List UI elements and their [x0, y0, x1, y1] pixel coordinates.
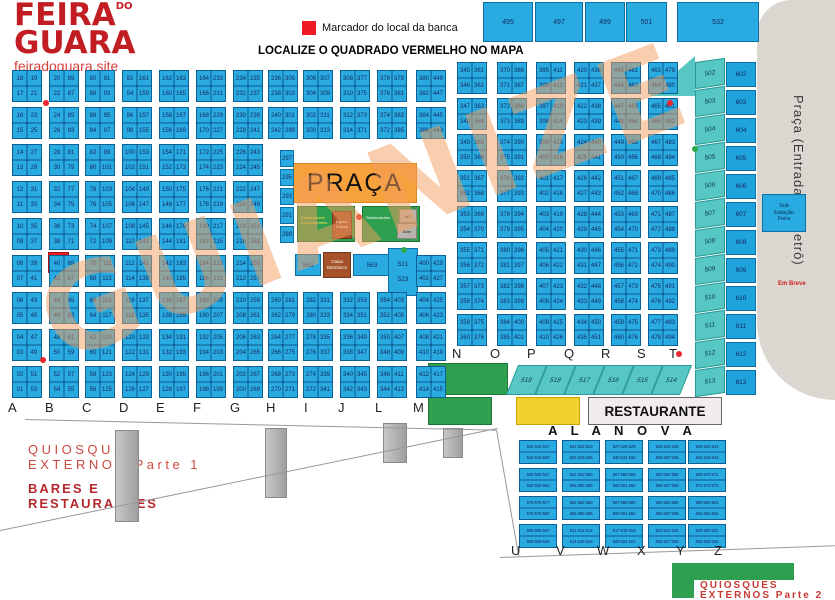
stall-number: 19	[27, 71, 41, 86]
ala-nova-row: 536 537 538	[649, 452, 685, 463]
stall-number: 472	[649, 222, 663, 237]
stall-number: 396	[537, 78, 551, 93]
stall-block: 210259208261	[233, 292, 263, 324]
stall-number: 50	[50, 345, 64, 360]
stall-number: 07	[13, 271, 27, 286]
stall-number: 397	[512, 258, 526, 273]
stall-number: 422	[551, 258, 565, 273]
stall-number: 443	[589, 186, 603, 201]
top-stall-box: 499	[585, 2, 625, 42]
stall-block: 108145110143	[122, 218, 152, 250]
yellow-block	[516, 397, 580, 425]
stall-number: 03	[13, 345, 27, 360]
stall-block: 370386371387	[497, 62, 527, 94]
stall-block: 453469454470	[611, 206, 641, 238]
column-letter-W: W	[597, 543, 609, 558]
side-square-cell: 602	[726, 62, 756, 87]
stall-block: 384445386443	[416, 107, 446, 139]
stall-block: 469485470486	[648, 170, 678, 202]
side-strip-cell: 503	[695, 86, 725, 117]
stall-number: 470	[626, 222, 640, 237]
stall-number: 476	[649, 294, 663, 309]
side-strip-cell: 506	[695, 170, 725, 201]
stall-block: 146179144181	[159, 218, 189, 250]
stall-block: 384400385401	[497, 314, 527, 346]
stall-number: 449	[589, 294, 603, 309]
stall-number: 374	[498, 135, 512, 150]
stall-number: 434	[575, 315, 589, 330]
stall-563: 563	[353, 254, 391, 276]
stall-number: 216	[234, 234, 248, 249]
stall-number: 89	[64, 71, 78, 86]
stall-block: 408421410419	[416, 329, 446, 361]
stall-number: 100	[123, 145, 137, 160]
stall-number: 382	[498, 279, 512, 294]
stall-block: 351367352368	[457, 170, 487, 202]
stall-number: 114	[123, 271, 137, 286]
stall-number: 127	[137, 382, 151, 397]
stall-number: 410	[417, 345, 431, 360]
stall-number: 121	[100, 345, 114, 360]
stall-number: 56	[86, 382, 100, 397]
stall-number: 445	[431, 108, 445, 123]
stall-number: 386	[512, 63, 526, 78]
stall-number: 217	[211, 219, 225, 234]
column-letter-I: I	[304, 400, 308, 415]
stall-number: 340	[341, 367, 355, 382]
stall-number: 356	[458, 258, 472, 273]
stall-number: 41	[27, 271, 41, 286]
stall-number: 280	[304, 308, 318, 323]
stall-number: 75	[64, 197, 78, 212]
stall-block: 405421406422	[536, 242, 566, 274]
stall-number: 415	[551, 135, 565, 150]
stall-block: 345361346362	[457, 62, 487, 94]
stall-block: 457473458474	[611, 278, 641, 310]
stall-number: 390	[512, 135, 526, 150]
stall-number: 377	[498, 186, 512, 201]
stall-number: 265	[248, 345, 262, 360]
stall-number: 20	[50, 71, 64, 86]
stall-number: 122	[123, 345, 137, 360]
stall-521: 521	[398, 261, 409, 268]
stall-number: 270	[269, 382, 283, 397]
stall-number: 387	[512, 78, 526, 93]
stall-number: 120	[123, 330, 137, 345]
stall-number: 348	[458, 114, 472, 129]
stall-number: 304	[304, 86, 318, 101]
stall-number: 133	[137, 330, 151, 345]
stall-number: 463	[649, 63, 663, 78]
stall-number: 459	[612, 315, 626, 330]
green-left-line2: e Lanchonetes	[301, 220, 327, 225]
stall-number: 269	[248, 382, 262, 397]
stall-block: 353369354370	[457, 206, 487, 238]
stall-number: 469	[649, 171, 663, 186]
stall-block: 164233166231	[196, 70, 226, 102]
stall-block: 5812356125	[85, 366, 115, 398]
stall-number: 467	[626, 171, 640, 186]
adm-box: Adm	[397, 223, 417, 239]
stall-number: 352	[458, 186, 472, 201]
pillar	[115, 430, 139, 522]
stall-number: 299	[283, 123, 297, 138]
ala-nova-row: 563 564 565	[649, 469, 685, 480]
stall-number: 381	[498, 258, 512, 273]
stall-number: 58	[86, 367, 100, 382]
green-left-label: Restaurantes e Lanchonetes	[301, 215, 327, 225]
stall-number: 410	[537, 330, 551, 345]
stall-number: 337	[318, 345, 332, 360]
ala-nova-block: 551 552 553554 555 556	[562, 468, 600, 492]
stall-number: 354	[378, 293, 392, 308]
stall-number: 09	[13, 234, 27, 249]
stall-block: 9216194159	[122, 70, 152, 102]
stall-block: 282331280333	[303, 292, 333, 324]
stall-number: 466	[626, 150, 640, 165]
em-breve-label: Em Breve	[778, 281, 806, 287]
stall-number: 416	[551, 150, 565, 165]
stall-number: 126	[123, 382, 137, 397]
stall-block: 222247220249	[233, 181, 263, 213]
stall-number: 465	[649, 99, 663, 114]
stall-block: 428444429445	[574, 206, 604, 238]
stall-number: 207	[211, 308, 225, 323]
stall-number: 49	[27, 345, 41, 360]
stall-number: 23	[27, 108, 41, 123]
stall-number: 376	[498, 171, 512, 186]
stall-number: 359	[458, 315, 472, 330]
stall-number: 106	[123, 197, 137, 212]
stall-number: 354	[458, 222, 472, 237]
side-square-cell: 613	[726, 370, 756, 395]
stall-number: 93	[100, 86, 114, 101]
column-letter-E: E	[156, 400, 165, 415]
stall-number: 360	[458, 330, 472, 345]
stall-number: 448	[612, 114, 626, 129]
stall-number: 478	[649, 330, 663, 345]
side-strip-cell: 508	[695, 226, 725, 257]
stall-number: 198	[197, 382, 211, 397]
stall-number: 336	[341, 330, 355, 345]
ala-nova-block: 539 540 541542 543 544	[688, 440, 726, 464]
stall-number: 187	[174, 293, 188, 308]
stall-number: 282	[304, 293, 318, 308]
stall-block: 349365350366	[457, 134, 487, 166]
bares-line1: BARES E	[28, 481, 100, 496]
stall-number: 186	[197, 271, 211, 286]
stage-line2: Cultural	[336, 225, 348, 230]
quiosques2-green-stub	[672, 580, 694, 598]
stall-number: 398	[512, 279, 526, 294]
stall-block: 346411344413	[377, 366, 407, 398]
stall-number: 190	[197, 308, 211, 323]
stall-number: 405	[537, 243, 551, 258]
stall-number: 412	[551, 78, 565, 93]
stall-number: 61	[64, 330, 78, 345]
stall-number: 219	[211, 197, 225, 212]
column-letter-X: X	[637, 543, 646, 558]
stall-number: 371	[472, 243, 486, 258]
stall-number: 379	[498, 222, 512, 237]
stall-number: 143	[137, 234, 151, 249]
stall-number: 454	[612, 222, 626, 237]
stall-523: 523	[398, 276, 409, 283]
stall-number: 138	[160, 293, 174, 308]
stall-number: 24	[50, 108, 64, 123]
ala-nova-row: 575 576 577	[520, 497, 556, 508]
praca-block: PRAÇA	[293, 163, 417, 203]
stall-number: 213	[211, 256, 225, 271]
stall-number: 278	[304, 330, 318, 345]
stall-number: 158	[160, 108, 174, 123]
stall-number: 233	[211, 71, 225, 86]
stall-number: 123	[100, 367, 114, 382]
stall-block: 214255212257	[233, 255, 263, 287]
stall-number: 381	[392, 86, 406, 101]
stall-number: 01	[13, 382, 27, 397]
stall-number: 384	[417, 108, 431, 123]
stall-block: 9615798155	[122, 107, 152, 139]
stall-single: 289	[280, 226, 294, 243]
stall-block: 422438423439	[574, 98, 604, 130]
side-square-cell: 609	[726, 258, 756, 283]
stall-number: 445	[589, 222, 603, 237]
stall-number: 214	[234, 256, 248, 271]
stall-number: 475	[649, 279, 663, 294]
stall-number: 251	[248, 219, 262, 234]
stall-number: 448	[589, 279, 603, 294]
stall-number: 402	[417, 271, 431, 286]
column-letter-N: N	[452, 346, 461, 361]
ala-nova-row: 557 558 559	[606, 469, 642, 480]
stall-number: 22	[50, 86, 64, 101]
stall-number: 202	[234, 367, 248, 382]
stall-number: 191	[174, 330, 188, 345]
stall-block: 150175148177	[159, 181, 189, 213]
stall-number: 91	[100, 71, 114, 86]
stall-number: 358	[458, 294, 472, 309]
stall-number: 206	[234, 330, 248, 345]
substation-box: Sub Estação Feira	[762, 194, 806, 232]
ala-nova-row: 551 552 553	[563, 469, 599, 480]
stall-number: 263	[248, 330, 262, 345]
column-letter-Q: Q	[564, 346, 574, 361]
stall-number: 350	[458, 150, 472, 165]
boundary-line	[25, 419, 497, 431]
stall-number: 385	[392, 123, 406, 138]
stall-number: 461	[626, 63, 640, 78]
stall-block: 226243224245	[233, 144, 263, 176]
stall-block: 374390375391	[497, 134, 527, 166]
stall-number: 369	[472, 207, 486, 222]
side-square-cell: 612	[726, 342, 756, 367]
ala-nova-block: 605 606 607608 609 610	[519, 524, 557, 548]
stall-number: 371	[498, 78, 512, 93]
stall-number: 391	[512, 150, 526, 165]
stall-number: 411	[551, 63, 565, 78]
stall-number: 303	[283, 86, 297, 101]
green-dot-marker	[692, 146, 698, 152]
stall-block: 158167156169	[159, 107, 189, 139]
column-letter-P: P	[527, 346, 536, 361]
stall-number: 442	[589, 171, 603, 186]
fair-map: FEIRADO GUARA feiradoguara.site Marcador…	[0, 0, 835, 600]
stall-block: 40694267	[49, 255, 79, 287]
stall-number: 14	[13, 145, 27, 160]
stall-number: 266	[269, 345, 283, 360]
stall-number: 480	[663, 78, 677, 93]
stall-number: 449	[612, 135, 626, 150]
stall-block: 124129126127	[122, 366, 152, 398]
stall-number: 223	[211, 160, 225, 175]
legend-marker-square	[302, 21, 316, 35]
stall-number: 429	[431, 256, 445, 271]
stall-number: 490	[663, 258, 677, 273]
stall-number: 234	[234, 71, 248, 86]
stall-number: 383	[498, 294, 512, 309]
stall-block: 218251216253	[233, 218, 263, 250]
ala-nova-block: 587 588 589590 591 592	[605, 496, 643, 520]
stall-block: 374383372385	[377, 107, 407, 139]
ala-nova-row: 578 579 580	[520, 508, 556, 519]
stall-number: 192	[197, 330, 211, 345]
stall-number: 451	[589, 330, 603, 345]
stall-number: 125	[100, 382, 114, 397]
stall-number: 400	[417, 256, 431, 271]
stall-number: 224	[234, 160, 248, 175]
stall-number: 475	[626, 315, 640, 330]
stall-block: 112141114139	[122, 255, 152, 287]
stall-number: 453	[612, 207, 626, 222]
stall-number: 451	[612, 171, 626, 186]
stall-number: 188	[197, 293, 211, 308]
stall-number: 467	[649, 135, 663, 150]
stall-number: 82	[86, 145, 100, 160]
stall-number: 109	[100, 234, 114, 249]
stall-block: 459475460476	[611, 314, 641, 346]
stall-number: 350	[378, 330, 392, 345]
stall-number: 457	[612, 279, 626, 294]
stall-number: 398	[537, 114, 551, 129]
stall-number: 376	[378, 86, 392, 101]
stall-number: 376	[472, 330, 486, 345]
stall-single: 295	[280, 169, 294, 186]
stall-number: 267	[248, 367, 262, 382]
stall-number: 402	[537, 186, 551, 201]
stall-block: 06430545	[12, 292, 42, 324]
stall-block: 184213186211	[196, 255, 226, 287]
stall-number: 468	[626, 186, 640, 201]
stall-number: 232	[234, 86, 248, 101]
stall-number: 447	[589, 258, 603, 273]
stall-number: 65	[64, 293, 78, 308]
stall-number: 418	[551, 186, 565, 201]
stall-block: 6211960121	[85, 329, 115, 361]
stall-number: 165	[174, 86, 188, 101]
stall-number: 230	[234, 108, 248, 123]
stall-number: 313	[318, 123, 332, 138]
stall-number: 417	[551, 171, 565, 186]
stall-number: 404	[537, 222, 551, 237]
stall-number: 29	[27, 160, 41, 175]
stall-number: 161	[137, 71, 151, 86]
stall-block: 90918893	[85, 70, 115, 102]
ala-nova-row: 548 549 550	[520, 480, 556, 491]
stall-number: 440	[589, 135, 603, 150]
stall-block: 86958497	[85, 107, 115, 139]
stall-number: 227	[211, 123, 225, 138]
stall-number: 274	[304, 367, 318, 382]
stall-number: 272	[304, 382, 318, 397]
stall-block: 357373358374	[457, 278, 487, 310]
ala-nova-block: 593 594 595596 597 598	[648, 496, 686, 520]
stall-number: 403	[537, 207, 551, 222]
stall-number: 55	[64, 382, 78, 397]
stall-number: 443	[431, 123, 445, 138]
stall-number: 414	[551, 114, 565, 129]
stall-number: 492	[663, 294, 677, 309]
stall-block: 130195128197	[159, 366, 189, 398]
column-letter-C: C	[82, 400, 91, 415]
stall-number: 43	[27, 293, 41, 308]
stall-number: 375	[498, 150, 512, 165]
stall-single: 293	[280, 188, 294, 205]
stall-number: 430	[575, 243, 589, 258]
stall-number: 365	[472, 135, 486, 150]
stall-number: 314	[341, 123, 355, 138]
red-dot-marker	[356, 214, 362, 220]
stall-number: 06	[13, 293, 27, 308]
stall-number: 469	[626, 207, 640, 222]
stall-number: 473	[649, 243, 663, 258]
quiosques2-green-bar	[672, 563, 794, 580]
stall-block: 168229170227	[196, 107, 226, 139]
stall-number: 473	[626, 279, 640, 294]
stall-number: 180	[197, 219, 211, 234]
stall-number: 474	[626, 294, 640, 309]
stall-number: 400	[537, 150, 551, 165]
stall-number: 450	[612, 150, 626, 165]
ala-nova-block: 569 570 571572 573 574	[688, 468, 726, 492]
green-block-small	[428, 397, 492, 425]
stall-block: 424440425441	[574, 134, 604, 166]
stall-number: 218	[234, 219, 248, 234]
stall-number: 84	[86, 123, 100, 138]
stall-number: 238	[269, 86, 283, 101]
stall-block: 202267200269	[233, 366, 263, 398]
stall-block: 116137118135	[122, 292, 152, 324]
stall-number: 486	[663, 186, 677, 201]
stall-number: 409	[537, 315, 551, 330]
stall-number: 174	[197, 160, 211, 175]
stall-number: 275	[283, 345, 297, 360]
stall-block: 14271329	[12, 144, 42, 176]
stall-number: 409	[392, 345, 406, 360]
stall-number: 332	[341, 293, 355, 308]
stall-number: 341	[318, 382, 332, 397]
stall-number: 380	[498, 243, 512, 258]
stall-number: 310	[341, 86, 355, 101]
ala-nova-row: 518 519 520	[520, 452, 556, 463]
stall-number: 16	[13, 108, 27, 123]
stall-block: 32773475	[49, 181, 79, 213]
stall-block: 172225174223	[196, 144, 226, 176]
stall-number: 166	[197, 86, 211, 101]
logo: FEIRADO GUARA feiradoguara.site	[14, 2, 164, 72]
stall-number: 117	[100, 308, 114, 323]
substation-line1: Sub	[779, 203, 789, 210]
